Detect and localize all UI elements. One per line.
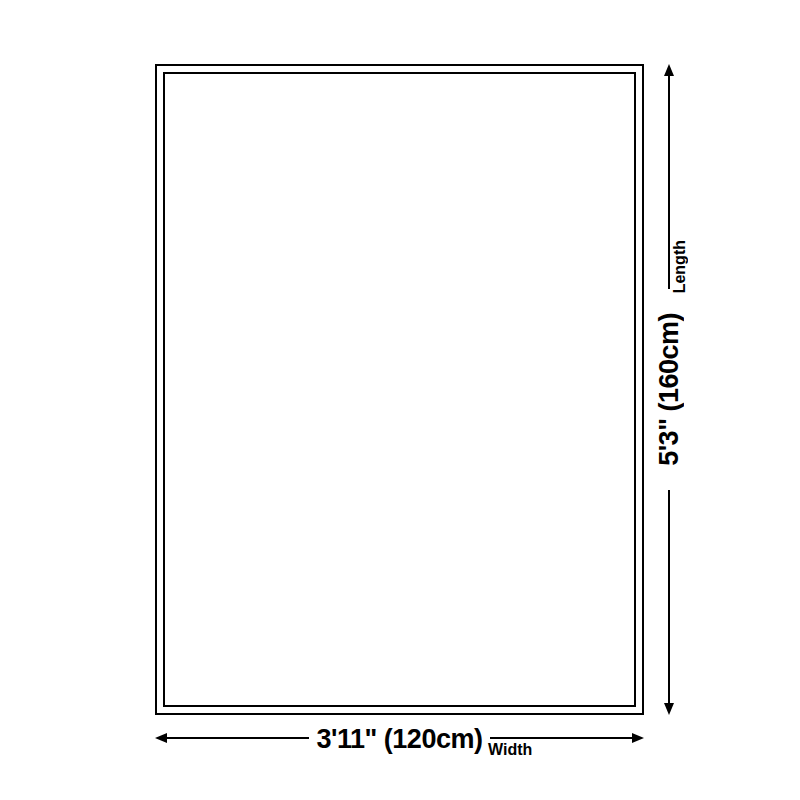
width-arrow-line-right [490, 737, 632, 739]
dimension-diagram: 5'3" (160cm) Length 3'11" (120cm) Width [0, 0, 800, 800]
length-arrow-line-upper [668, 76, 670, 289]
width-value-label: 3'11" (120cm) [309, 726, 491, 753]
width-axis-label: Width [488, 742, 532, 758]
arrow-down-icon [664, 703, 674, 715]
length-arrow-line-lower [668, 490, 670, 703]
arrow-up-icon [664, 64, 674, 76]
rug-outline-outer [155, 64, 644, 715]
width-dimension-arrow: 3'11" (120cm) [155, 730, 644, 746]
arrow-left-icon [155, 733, 167, 743]
arrow-right-icon [632, 733, 644, 743]
length-axis-label: Length [672, 240, 688, 293]
rug-outline-inner [163, 72, 636, 707]
length-dimension-arrow: 5'3" (160cm) [661, 64, 677, 715]
length-value-label: 5'3" (160cm) [656, 289, 683, 490]
width-arrow-line-left [167, 737, 309, 739]
